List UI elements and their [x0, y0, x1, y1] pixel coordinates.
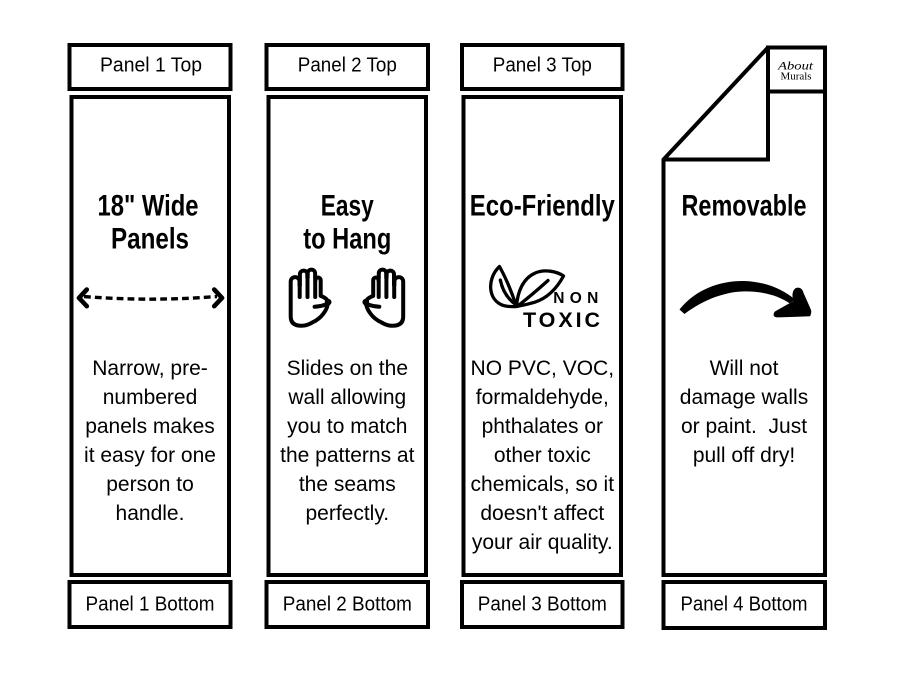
svg-text:or paint. Just: or paint. Just [681, 415, 807, 438]
svg-text:it easy for one: it easy for one [84, 444, 216, 467]
svg-text:Will not: Will not [710, 357, 779, 380]
svg-text:panels makes: panels makes [85, 415, 215, 438]
svg-text:pull off dry!: pull off dry! [693, 444, 795, 467]
svg-text:to Hang: to Hang [303, 222, 391, 255]
svg-text:Panel 1 Bottom: Panel 1 Bottom [86, 593, 215, 616]
svg-text:person to: person to [106, 473, 194, 496]
svg-text:the patterns at: the patterns at [280, 444, 414, 467]
svg-text:Removable: Removable [682, 189, 807, 222]
svg-text:Narrow, pre-: Narrow, pre- [92, 357, 208, 380]
svg-text:Panel 2 Bottom: Panel 2 Bottom [283, 593, 412, 616]
svg-text:the seams: the seams [299, 473, 396, 496]
svg-text:other toxic: other toxic [494, 444, 591, 467]
svg-text:Slides on the: Slides on the [287, 357, 408, 380]
svg-text:Panel 4 Bottom: Panel 4 Bottom [681, 593, 808, 616]
svg-text:Easy: Easy [321, 189, 374, 222]
svg-text:phthalates or: phthalates or [482, 415, 603, 438]
svg-text:Panel 3 Top: Panel 3 Top [493, 54, 592, 77]
svg-text:numbered: numbered [103, 386, 198, 409]
svg-text:chemicals, so it: chemicals, so it [471, 473, 615, 496]
svg-text:18" Wide: 18" Wide [98, 189, 199, 222]
svg-text:Eco-Friendly: Eco-Friendly [470, 189, 615, 222]
svg-text:doesn't affect: doesn't affect [480, 502, 604, 525]
svg-text:Panel 2 Top: Panel 2 Top [298, 54, 397, 77]
svg-text:TOXIC: TOXIC [523, 308, 600, 332]
svg-text:wall allowing: wall allowing [287, 386, 406, 409]
svg-text:perfectly.: perfectly. [305, 502, 389, 525]
svg-text:Panels: Panels [111, 222, 189, 255]
svg-text:you to match: you to match [287, 415, 407, 438]
svg-text:handle.: handle. [116, 502, 185, 525]
svg-text:Panel 3 Bottom: Panel 3 Bottom [478, 593, 607, 616]
svg-text:Panel 1 Top: Panel 1 Top [100, 54, 202, 77]
svg-text:formaldehyde,: formaldehyde, [476, 386, 609, 409]
svg-text:NON: NON [553, 290, 598, 307]
svg-text:your air quality.: your air quality. [472, 531, 613, 554]
svg-text:NO PVC, VOC,: NO PVC, VOC, [471, 357, 615, 380]
svg-text:damage walls: damage walls [680, 386, 808, 409]
svg-text:Murals: Murals [781, 72, 812, 83]
